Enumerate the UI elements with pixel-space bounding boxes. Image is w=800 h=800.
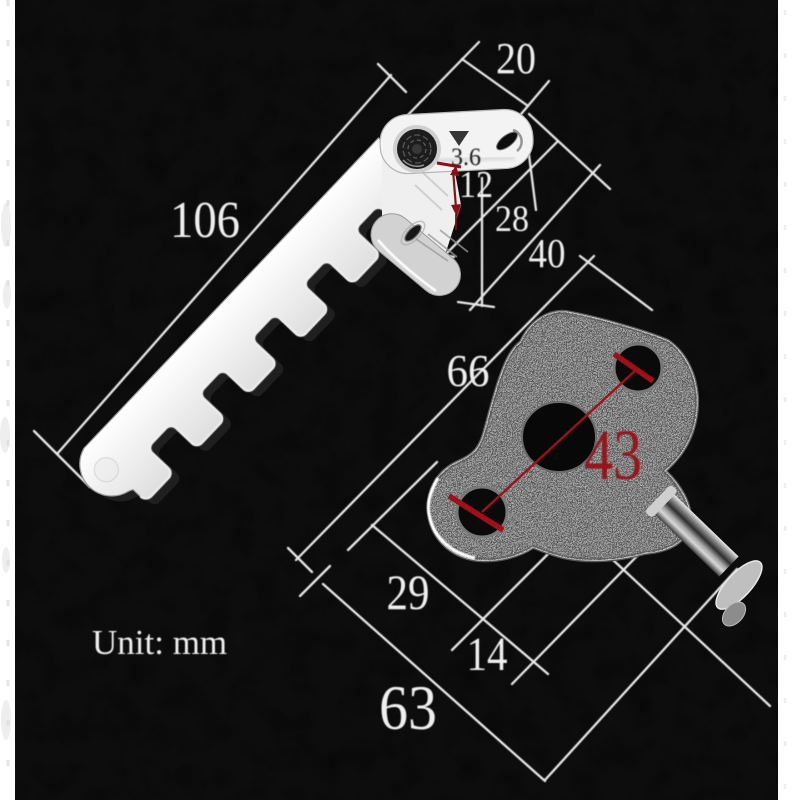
svg-text:12: 12: [459, 164, 493, 206]
svg-text:43: 43: [584, 415, 642, 495]
svg-text:63: 63: [379, 672, 437, 743]
svg-text:28: 28: [495, 199, 529, 240]
svg-text:20: 20: [496, 34, 536, 83]
svg-text:29: 29: [387, 564, 430, 620]
svg-text:Unit: mm: Unit: mm: [92, 623, 227, 662]
svg-text:66: 66: [447, 346, 490, 396]
svg-text:40: 40: [529, 230, 566, 276]
svg-text:106: 106: [170, 192, 240, 249]
svg-text:14: 14: [467, 628, 508, 681]
